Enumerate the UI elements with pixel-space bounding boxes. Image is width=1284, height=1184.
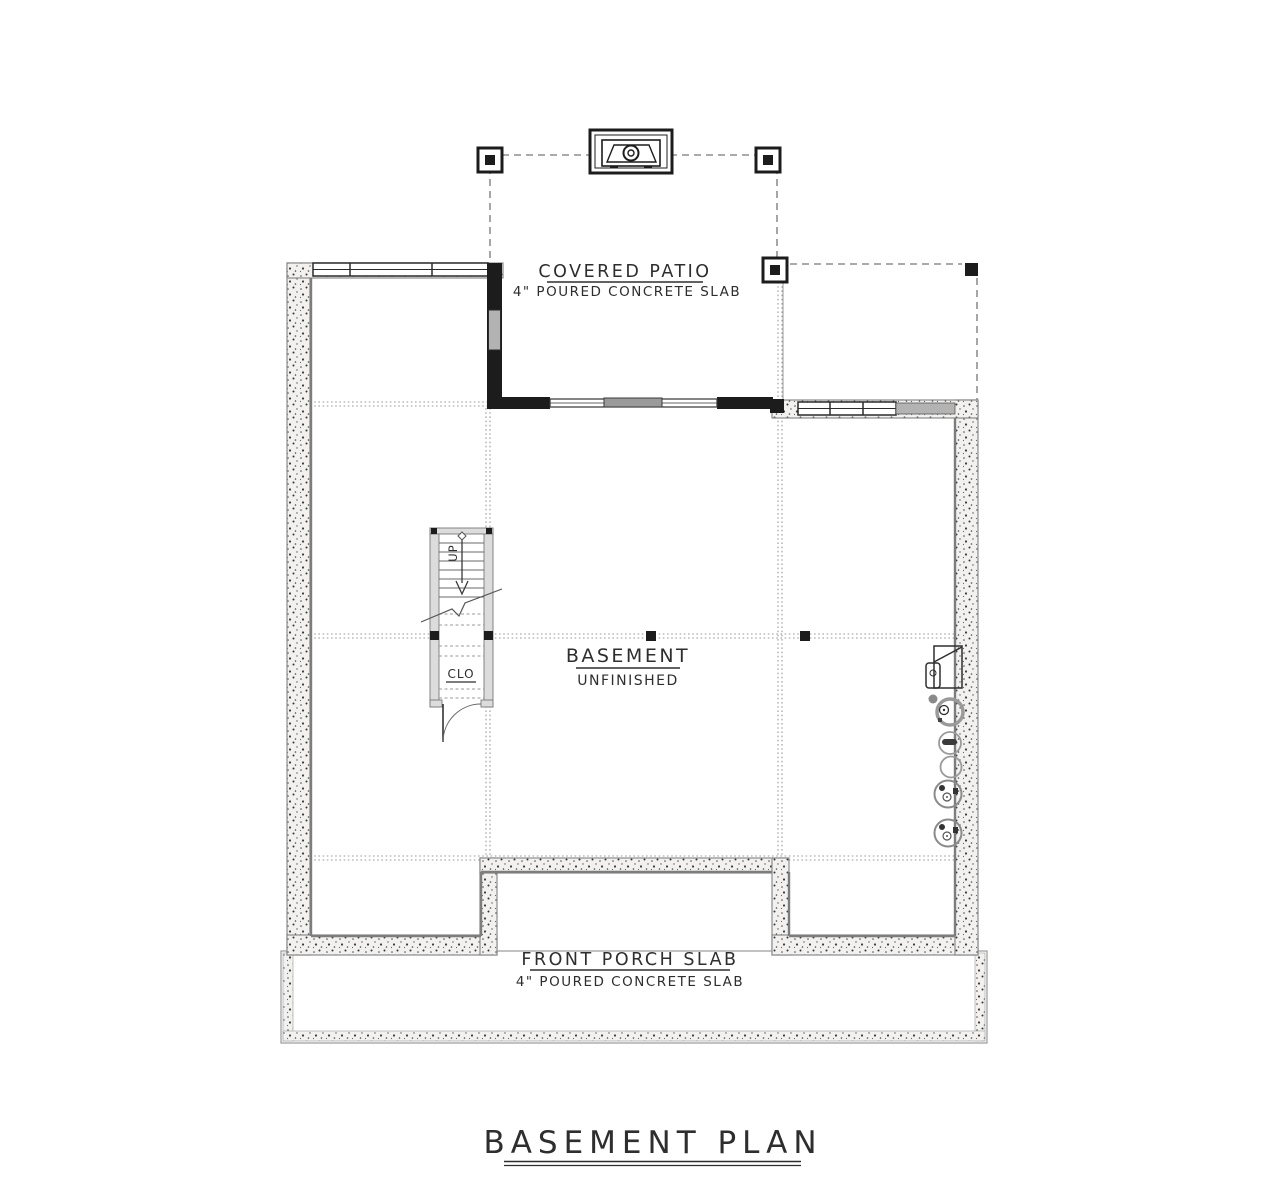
overhead-dotted-lines (310, 282, 956, 860)
covered-patio-label: COVERED PATIO (538, 262, 711, 282)
front-porch-label: FRONT PORCH SLAB (521, 950, 738, 970)
patio-side-wall (487, 263, 502, 408)
front-porch-note: 4" POURED CONCRETE SLAB (516, 974, 744, 990)
rear-wall-left-window (313, 263, 488, 276)
basement-label: BASEMENT (566, 645, 690, 667)
sliding-door-panel (604, 398, 662, 407)
patio-post-icon (478, 148, 502, 172)
basement-floor-plan-drawing: COVERED PATIO 4" POURED CONCRETE SLAB BA… (0, 0, 1284, 1184)
pipe-icon (929, 695, 938, 704)
sheet-title-block: BASEMENT PLAN (483, 1125, 822, 1166)
water-heater-icon (935, 820, 962, 847)
patio-post-icon (763, 258, 787, 282)
support-post-icons (646, 631, 810, 641)
corner-post-icon (965, 263, 978, 276)
foundation-walls (287, 263, 978, 955)
basement-note: UNFINISHED (577, 673, 679, 689)
covered-patio-note: 4" POURED CONCRETE SLAB (513, 284, 741, 300)
stairs-up-label: UP (446, 544, 460, 561)
wall-interior-faces (311, 278, 955, 936)
floor-plan-sheet: COVERED PATIO 4" POURED CONCRETE SLAB BA… (0, 0, 1284, 1184)
fireplace-icon (590, 130, 672, 173)
sheet-title: BASEMENT PLAN (483, 1125, 822, 1161)
water-heater-icon (935, 781, 962, 808)
patio-post-icon (756, 148, 780, 172)
patio-rear-wall (487, 397, 773, 409)
closet-label: CLO (447, 667, 474, 681)
